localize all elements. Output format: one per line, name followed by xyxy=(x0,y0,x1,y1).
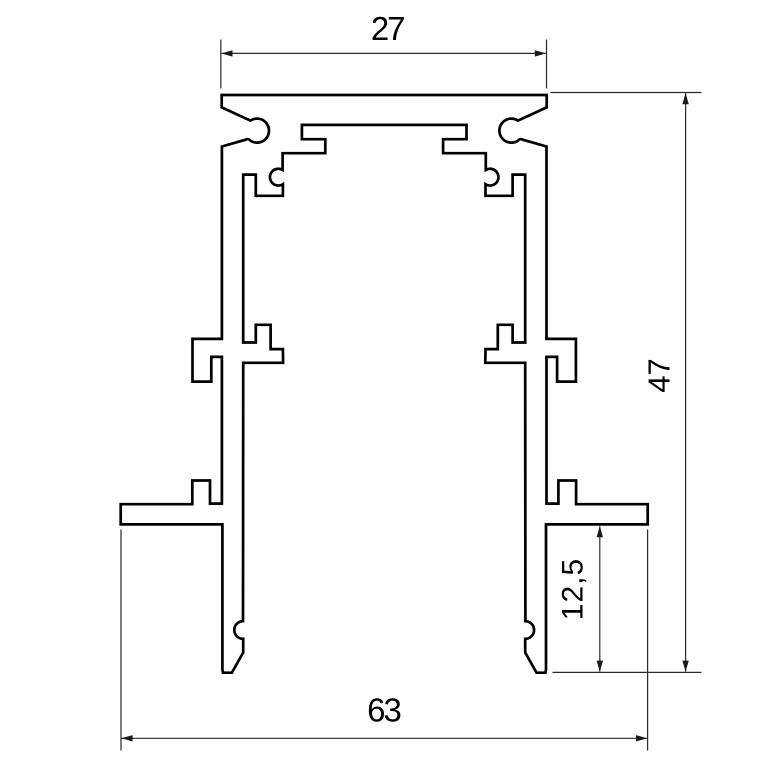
svg-text:63: 63 xyxy=(367,691,400,728)
svg-text:27: 27 xyxy=(371,10,404,47)
svg-text:47: 47 xyxy=(642,358,677,392)
svg-text:12,5: 12,5 xyxy=(556,558,589,620)
